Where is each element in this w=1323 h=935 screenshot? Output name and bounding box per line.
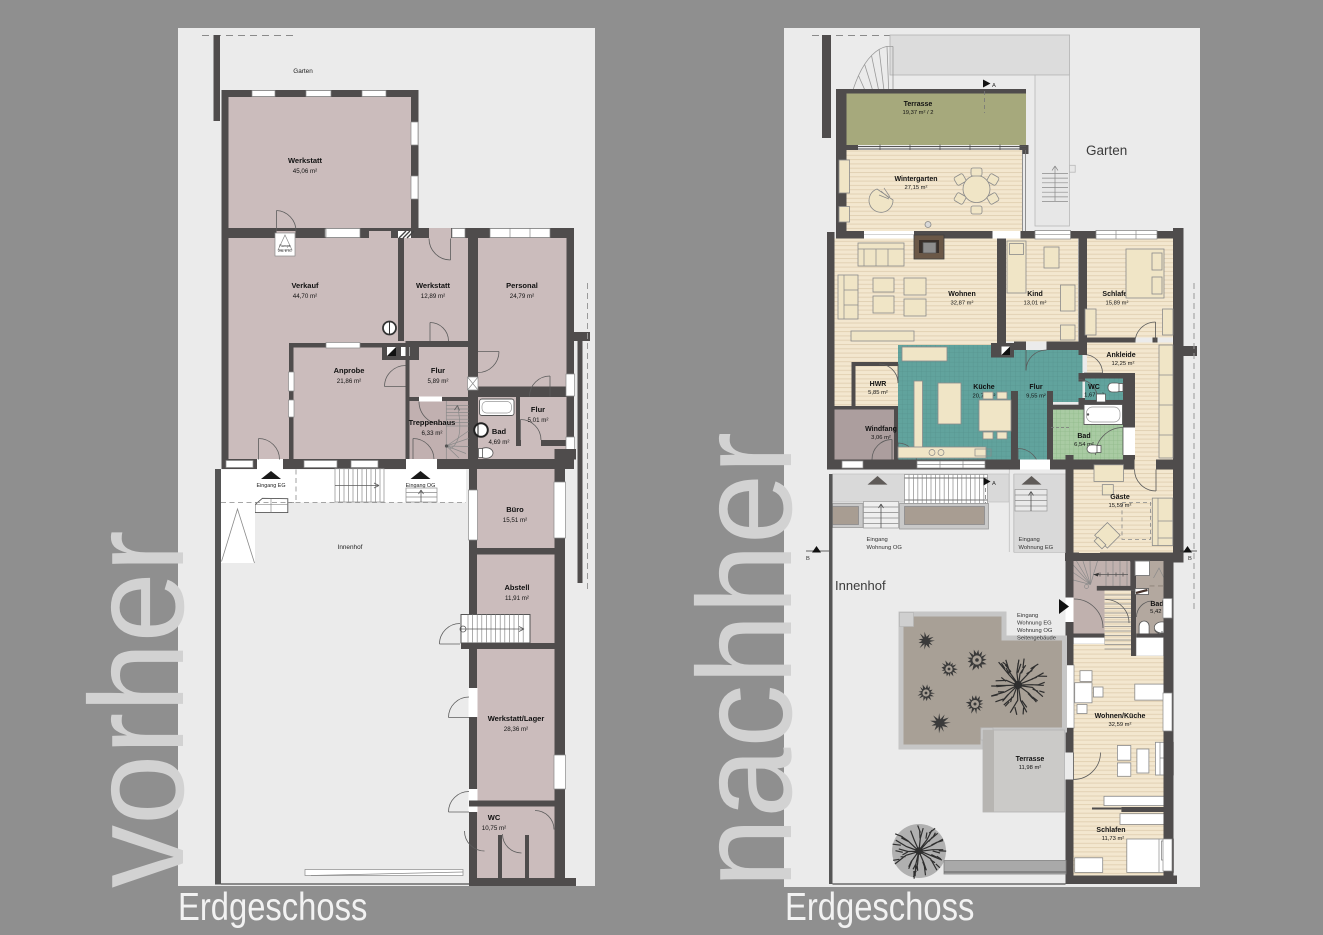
svg-text:5,85 m²: 5,85 m² bbox=[868, 390, 888, 396]
svg-text:32,59 m²: 32,59 m² bbox=[1109, 722, 1132, 728]
svg-text:Eingang EG: Eingang EG bbox=[256, 483, 285, 489]
svg-text:Treppenhaus: Treppenhaus bbox=[409, 418, 456, 427]
svg-text:Küche: Küche bbox=[973, 384, 995, 391]
svg-text:Bad: Bad bbox=[492, 427, 507, 436]
svg-text:Werkstatt/Lager: Werkstatt/Lager bbox=[488, 714, 545, 723]
svg-text:Eingang: Eingang bbox=[1017, 613, 1038, 619]
svg-text:Abstell: Abstell bbox=[504, 583, 529, 592]
svg-text:Personal: Personal bbox=[506, 281, 538, 290]
svg-text:13,01 m²: 13,01 m² bbox=[1024, 301, 1047, 307]
svg-text:Innenhof: Innenhof bbox=[338, 544, 363, 551]
svg-text:15,51 m²: 15,51 m² bbox=[503, 517, 527, 524]
svg-text:HWR: HWR bbox=[870, 381, 887, 388]
svg-text:Anprobe: Anprobe bbox=[334, 366, 365, 375]
svg-text:Seitengebäude: Seitengebäude bbox=[1017, 636, 1056, 642]
svg-text:Kind: Kind bbox=[1027, 291, 1043, 298]
svg-text:Werkstatt: Werkstatt bbox=[416, 281, 451, 290]
svg-text:21,86 m²: 21,86 m² bbox=[337, 378, 361, 385]
svg-text:Gäste: Gäste bbox=[1110, 494, 1130, 501]
svg-text:Wohnen: Wohnen bbox=[948, 291, 975, 298]
svg-text:Werkstatt: Werkstatt bbox=[288, 156, 323, 165]
svg-text:Schlafen: Schlafen bbox=[1096, 827, 1125, 834]
svg-text:10,75 m²: 10,75 m² bbox=[482, 825, 506, 832]
svg-text:WC: WC bbox=[488, 813, 501, 822]
svg-text:19,37 m² / 2: 19,37 m² / 2 bbox=[903, 110, 934, 116]
svg-text:15,59 m²: 15,59 m² bbox=[1109, 503, 1132, 509]
svg-text:Wohnung EG: Wohnung EG bbox=[1017, 621, 1052, 627]
svg-text:A: A bbox=[992, 481, 996, 487]
svg-text:44,70 m²: 44,70 m² bbox=[293, 293, 317, 300]
svg-text:Flur: Flur bbox=[1029, 384, 1042, 391]
svg-text:Wohnung EG: Wohnung EG bbox=[1019, 545, 1054, 551]
svg-text:Wintergarten: Wintergarten bbox=[894, 176, 937, 183]
svg-text:45,06 m²: 45,06 m² bbox=[293, 168, 317, 175]
svg-text:Windfang: Windfang bbox=[865, 426, 897, 433]
svg-text:Ankleide: Ankleide bbox=[1106, 352, 1135, 359]
svg-text:B: B bbox=[1188, 556, 1192, 562]
svg-text:12,89 m²: 12,89 m² bbox=[421, 293, 445, 300]
svg-text:Wohnung OG: Wohnung OG bbox=[867, 545, 903, 551]
svg-text:29L ETC: 29L ETC bbox=[278, 249, 292, 253]
svg-text:Innenhof: Innenhof bbox=[835, 578, 886, 593]
svg-text:B: B bbox=[806, 556, 810, 562]
svg-text:11,73 m²: 11,73 m² bbox=[1102, 836, 1125, 842]
svg-text:Garten: Garten bbox=[1086, 143, 1127, 158]
svg-text:3,06 m²: 3,06 m² bbox=[871, 435, 891, 441]
svg-text:24,79 m²: 24,79 m² bbox=[510, 293, 534, 300]
svg-text:Eingang: Eingang bbox=[1019, 537, 1040, 543]
svg-text:Wohnen/Küche: Wohnen/Küche bbox=[1095, 713, 1146, 720]
svg-text:Flur: Flur bbox=[531, 405, 545, 414]
svg-text:WC: WC bbox=[1088, 384, 1100, 391]
svg-text:12,25 m²: 12,25 m² bbox=[1112, 361, 1135, 367]
svg-text:9,55 m²: 9,55 m² bbox=[1026, 394, 1046, 400]
svg-text:Garten: Garten bbox=[293, 68, 313, 75]
svg-text:28,36 m²: 28,36 m² bbox=[504, 726, 528, 733]
svg-text:11,98 m²: 11,98 m² bbox=[1019, 765, 1042, 771]
svg-text:Eingang: Eingang bbox=[867, 537, 888, 543]
svg-text:Wohnung OG: Wohnung OG bbox=[1017, 628, 1053, 634]
svg-text:5,89 m²: 5,89 m² bbox=[428, 378, 449, 385]
svg-text:Bad: Bad bbox=[1077, 433, 1090, 440]
svg-text:Rampe: Rampe bbox=[279, 244, 290, 248]
svg-text:A: A bbox=[992, 83, 996, 89]
svg-text:5,01 m²: 5,01 m² bbox=[528, 417, 549, 424]
svg-text:Flur: Flur bbox=[431, 366, 445, 375]
svg-text:27,15 m²: 27,15 m² bbox=[905, 185, 928, 191]
svg-text:15,89 m²: 15,89 m² bbox=[1106, 301, 1129, 307]
svg-text:4,69 m²: 4,69 m² bbox=[489, 439, 510, 446]
svg-text:6,33 m²: 6,33 m² bbox=[422, 430, 443, 437]
svg-text:Terrasse: Terrasse bbox=[1016, 756, 1045, 763]
svg-text:Bad: Bad bbox=[1150, 601, 1163, 608]
svg-text:32,87 m²: 32,87 m² bbox=[951, 301, 974, 307]
svg-text:Büro: Büro bbox=[506, 505, 524, 514]
svg-text:11,91 m²: 11,91 m² bbox=[505, 595, 529, 602]
svg-text:Verkauf: Verkauf bbox=[291, 281, 319, 290]
svg-text:Terrasse: Terrasse bbox=[904, 101, 933, 108]
